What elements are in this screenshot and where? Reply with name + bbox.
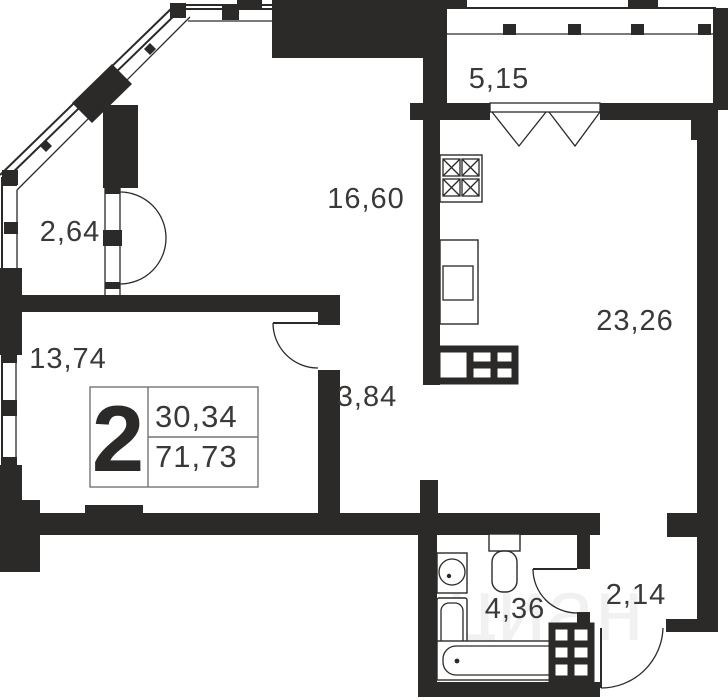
bathtub-drain: [455, 659, 460, 664]
room-area-label-hallway: 3,84: [337, 381, 397, 413]
wall-segment: [713, 8, 728, 110]
wall-segment: [667, 513, 697, 537]
wall-segment: [420, 480, 438, 515]
kitchen-counter-icon: [440, 240, 478, 324]
window-mullion: [105, 282, 120, 289]
wall-segment: [577, 535, 590, 569]
room-area-label-bathroom: 4,36: [485, 593, 545, 625]
wall-segment: [0, 465, 22, 513]
room-area-label-balcony: 5,15: [469, 63, 529, 95]
floor-plan: циан: [0, 0, 728, 700]
room-area-label-bedroom: 13,74: [29, 343, 107, 375]
window-mullion: [2, 457, 17, 466]
stove-icon: [440, 155, 482, 202]
glazing-mullion: [447, 0, 467, 8]
window-mullion: [4, 222, 18, 234]
wall-segment: [103, 105, 138, 188]
wall-segment: [418, 513, 437, 697]
living-area: 30,34: [155, 399, 238, 434]
wall-segment: [423, 0, 447, 120]
room-area-label-loggia: 2,64: [40, 216, 100, 248]
window-mullion: [2, 400, 17, 416]
room-area-label-kitchen-living: 23,26: [596, 305, 674, 337]
rooms-count: 2: [92, 386, 144, 491]
washbasin-drain: [447, 574, 451, 578]
window-mullion: [2, 176, 17, 186]
wall-segment: [691, 112, 718, 140]
room-area-label-entry: 2,14: [606, 579, 666, 611]
window-mullion: [2, 353, 17, 363]
wall-segment: [318, 295, 340, 325]
toilet-bowl: [492, 551, 517, 592]
wall-segment: [0, 312, 22, 355]
counter-body: [440, 240, 478, 324]
kitchen-vent-shaft-icon: [437, 349, 515, 381]
apartment-info-badge: 2 30,34 71,73: [90, 386, 258, 491]
floor-plan-page: циан: [0, 0, 728, 700]
entry-vent-shaft-icon: [552, 626, 591, 679]
glazing-mullion: [222, 4, 239, 20]
wall-segment: [0, 295, 340, 312]
toilet-tank: [489, 534, 520, 551]
window-mullion: [105, 187, 120, 194]
wall-segment: [440, 103, 490, 120]
room-area-label-living-top: 16,60: [327, 183, 405, 215]
wall-segment: [423, 120, 440, 385]
glazing-mullion: [628, 0, 658, 8]
washbasin-tap: [429, 567, 437, 574]
wall-segment: [697, 108, 718, 632]
total-area: 71,73: [155, 439, 238, 474]
toilet-icon: [489, 534, 520, 592]
wall-segment: [666, 619, 718, 632]
wall-segment: [103, 230, 122, 246]
wall-segment: [418, 682, 600, 697]
wall-segment: [85, 505, 143, 522]
washer-tap: [429, 621, 437, 628]
wall-segment: [272, 0, 447, 58]
